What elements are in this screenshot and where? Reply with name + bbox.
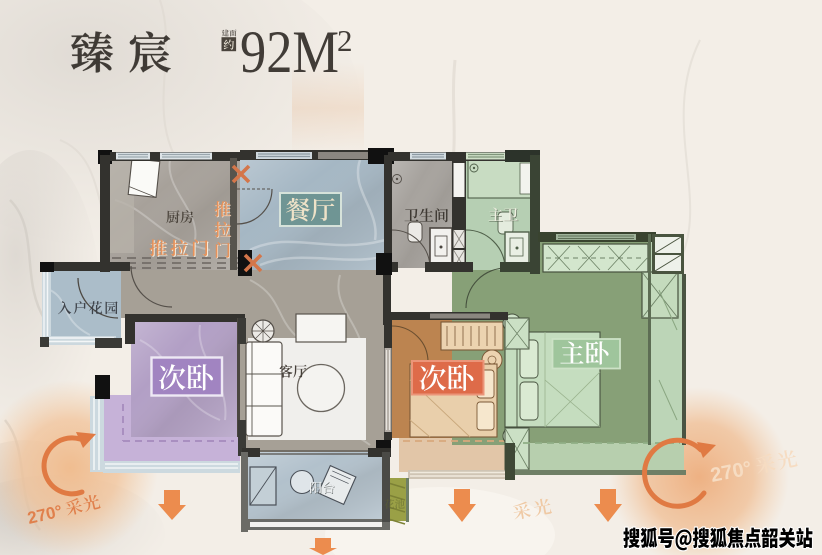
svg-text:92M: 92M bbox=[240, 19, 339, 85]
svg-text:2: 2 bbox=[337, 23, 353, 58]
